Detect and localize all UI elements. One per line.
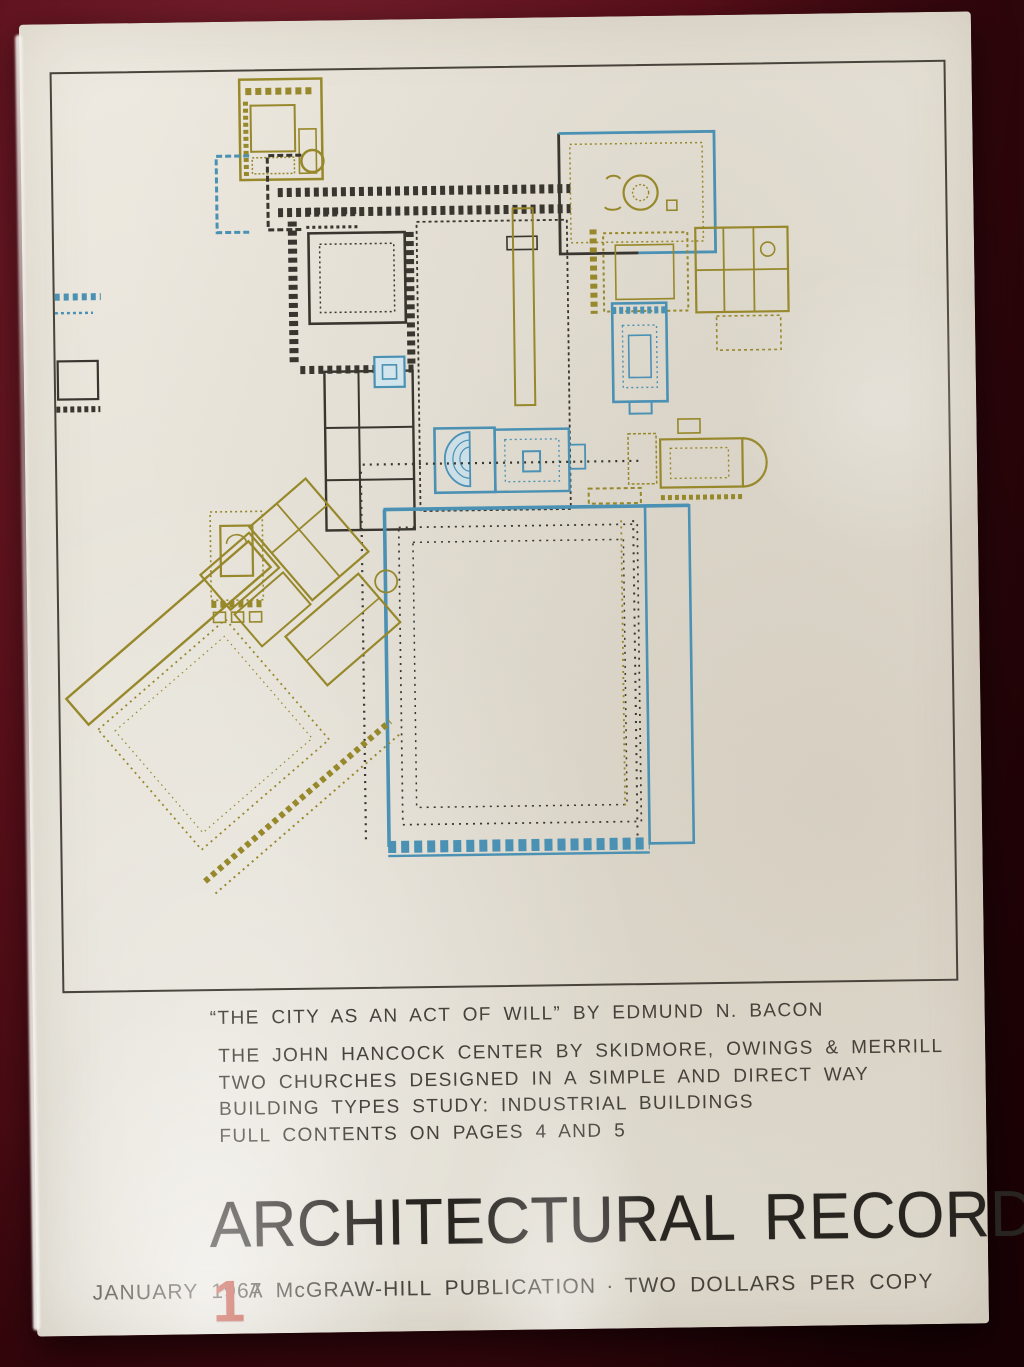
- city-block: [160, 924, 197, 961]
- city-block: [839, 65, 890, 116]
- city-block: [367, 959, 408, 991]
- city-block: [575, 68, 626, 119]
- city-block: [150, 263, 187, 300]
- olive-courtyard-plan: [239, 79, 323, 181]
- city-block: [255, 970, 292, 991]
- city-block: [522, 905, 563, 946]
- city-block: [850, 860, 901, 911]
- city-block: [523, 957, 564, 991]
- city-block: [113, 925, 150, 962]
- city-block: [302, 969, 339, 991]
- separator-dot: ·: [596, 1274, 625, 1297]
- city-block: [653, 929, 704, 980]
- city-block: [151, 310, 188, 347]
- city-block: [152, 405, 189, 442]
- city-block: [153, 452, 190, 489]
- city-block: [471, 958, 512, 991]
- city-block: [206, 876, 243, 913]
- round-monument-icon: [301, 150, 323, 172]
- city-block: [55, 170, 92, 207]
- city-block: [840, 131, 891, 182]
- city-block: [59, 453, 96, 490]
- city-block: [56, 217, 93, 254]
- city-block: [716, 729, 767, 780]
- city-block: [65, 878, 102, 915]
- city-block: [148, 122, 185, 159]
- city-block: [348, 922, 365, 958]
- city-block: [418, 906, 459, 947]
- city-block: [347, 874, 364, 910]
- basilica-plan: [628, 418, 767, 498]
- city-block: [301, 922, 338, 959]
- magazine-title: ARCHITECTURAL RECORD: [209, 1177, 982, 1262]
- issue-info-line: JANUARY 1967 1 A McGRAW-HILL PUBLICATION…: [36, 1263, 989, 1346]
- magazine-cover: “THE CITY AS AN ACT OF WILL” BY EDMUND N…: [19, 11, 989, 1336]
- theater-complex-plan: [434, 426, 585, 492]
- left-edge-plans: [55, 297, 103, 410]
- city-block: [349, 969, 366, 991]
- great-plaza-plan: [383, 487, 694, 856]
- city-block: [851, 926, 902, 977]
- city-block: [102, 169, 139, 206]
- city-block: [587, 930, 638, 981]
- city-plan-map-frame: [50, 60, 959, 993]
- city-block: [65, 925, 102, 962]
- city-block: [470, 906, 511, 947]
- city-block: [66, 973, 103, 992]
- city-block: [784, 861, 835, 912]
- cover-contents-block: “THE CITY AS AN ACT OF WILL” BY EDMUND N…: [210, 998, 945, 1150]
- city-block: [905, 64, 946, 115]
- city-block: [200, 451, 237, 488]
- city-block: [714, 597, 765, 648]
- city-block: [783, 795, 834, 846]
- city-block: [563, 69, 574, 109]
- city-block: [300, 875, 337, 912]
- city-block: [198, 310, 235, 347]
- city-block: [511, 69, 552, 110]
- city-block: [916, 793, 957, 844]
- city-block: [707, 66, 758, 117]
- city-block: [149, 169, 186, 206]
- city-block: [54, 123, 91, 160]
- city-block: [253, 876, 290, 913]
- city-block: [773, 65, 824, 116]
- diagonal-villa-complex-plan: [52, 475, 476, 893]
- forum-complex-plan: [278, 189, 575, 532]
- city-block: [715, 663, 766, 714]
- water-right: [854, 263, 952, 678]
- city-block: [159, 877, 196, 914]
- pantheon-block-plan: [559, 131, 716, 254]
- city-block: [719, 928, 770, 979]
- city-block: [207, 923, 244, 960]
- city-block: [103, 217, 140, 254]
- city-block: [254, 923, 291, 960]
- city-block: [718, 862, 769, 913]
- feature-article-line: “THE CITY AS AN ACT OF WILL” BY EDMUND N…: [210, 998, 943, 1030]
- city-block: [152, 358, 189, 395]
- city-block: [199, 357, 236, 394]
- city-block: [160, 971, 197, 991]
- issue-number: 1: [212, 1268, 245, 1335]
- city-block: [586, 864, 637, 915]
- city-block: [641, 67, 692, 118]
- city-block: [917, 925, 956, 976]
- city-block: [717, 796, 768, 847]
- city-block: [148, 74, 185, 111]
- city-block: [652, 863, 703, 914]
- city-plan-map: [52, 62, 957, 991]
- photo-background: { "palette": { "photo_bg": "#5a0f1a", "p…: [0, 0, 1024, 1367]
- city-block: [785, 927, 836, 978]
- city-block: [366, 907, 407, 948]
- price-text: TWO DOLLARS PER COPY: [624, 1270, 934, 1297]
- city-block: [207, 971, 244, 992]
- city-block: [849, 794, 900, 845]
- city-block: [198, 263, 235, 300]
- city-block: [200, 404, 237, 441]
- city-block: [906, 130, 947, 181]
- city-block: [574, 905, 585, 945]
- publisher-and-price: A McGRAW-HILL PUBLICATION·TWO DOLLARS PE…: [248, 1270, 933, 1304]
- city-block: [54, 76, 91, 113]
- city-block: [419, 959, 460, 992]
- city-block: [101, 75, 138, 112]
- city-block: [106, 453, 143, 490]
- city-block: [917, 859, 957, 910]
- city-blocks-layer: [54, 64, 957, 991]
- city-block: [113, 972, 150, 991]
- city-block: [150, 216, 187, 253]
- city-block: [101, 122, 138, 159]
- temple-enclosure-plan: [612, 303, 668, 414]
- monument-plans-layer: [52, 62, 955, 896]
- baths-complex-plan: [593, 227, 789, 352]
- city-block: [112, 877, 149, 914]
- city-block: [575, 957, 586, 991]
- publisher-text: A McGRAW-HILL PUBLICATION: [248, 1275, 596, 1303]
- colonnade-dotted-lines: [361, 461, 648, 842]
